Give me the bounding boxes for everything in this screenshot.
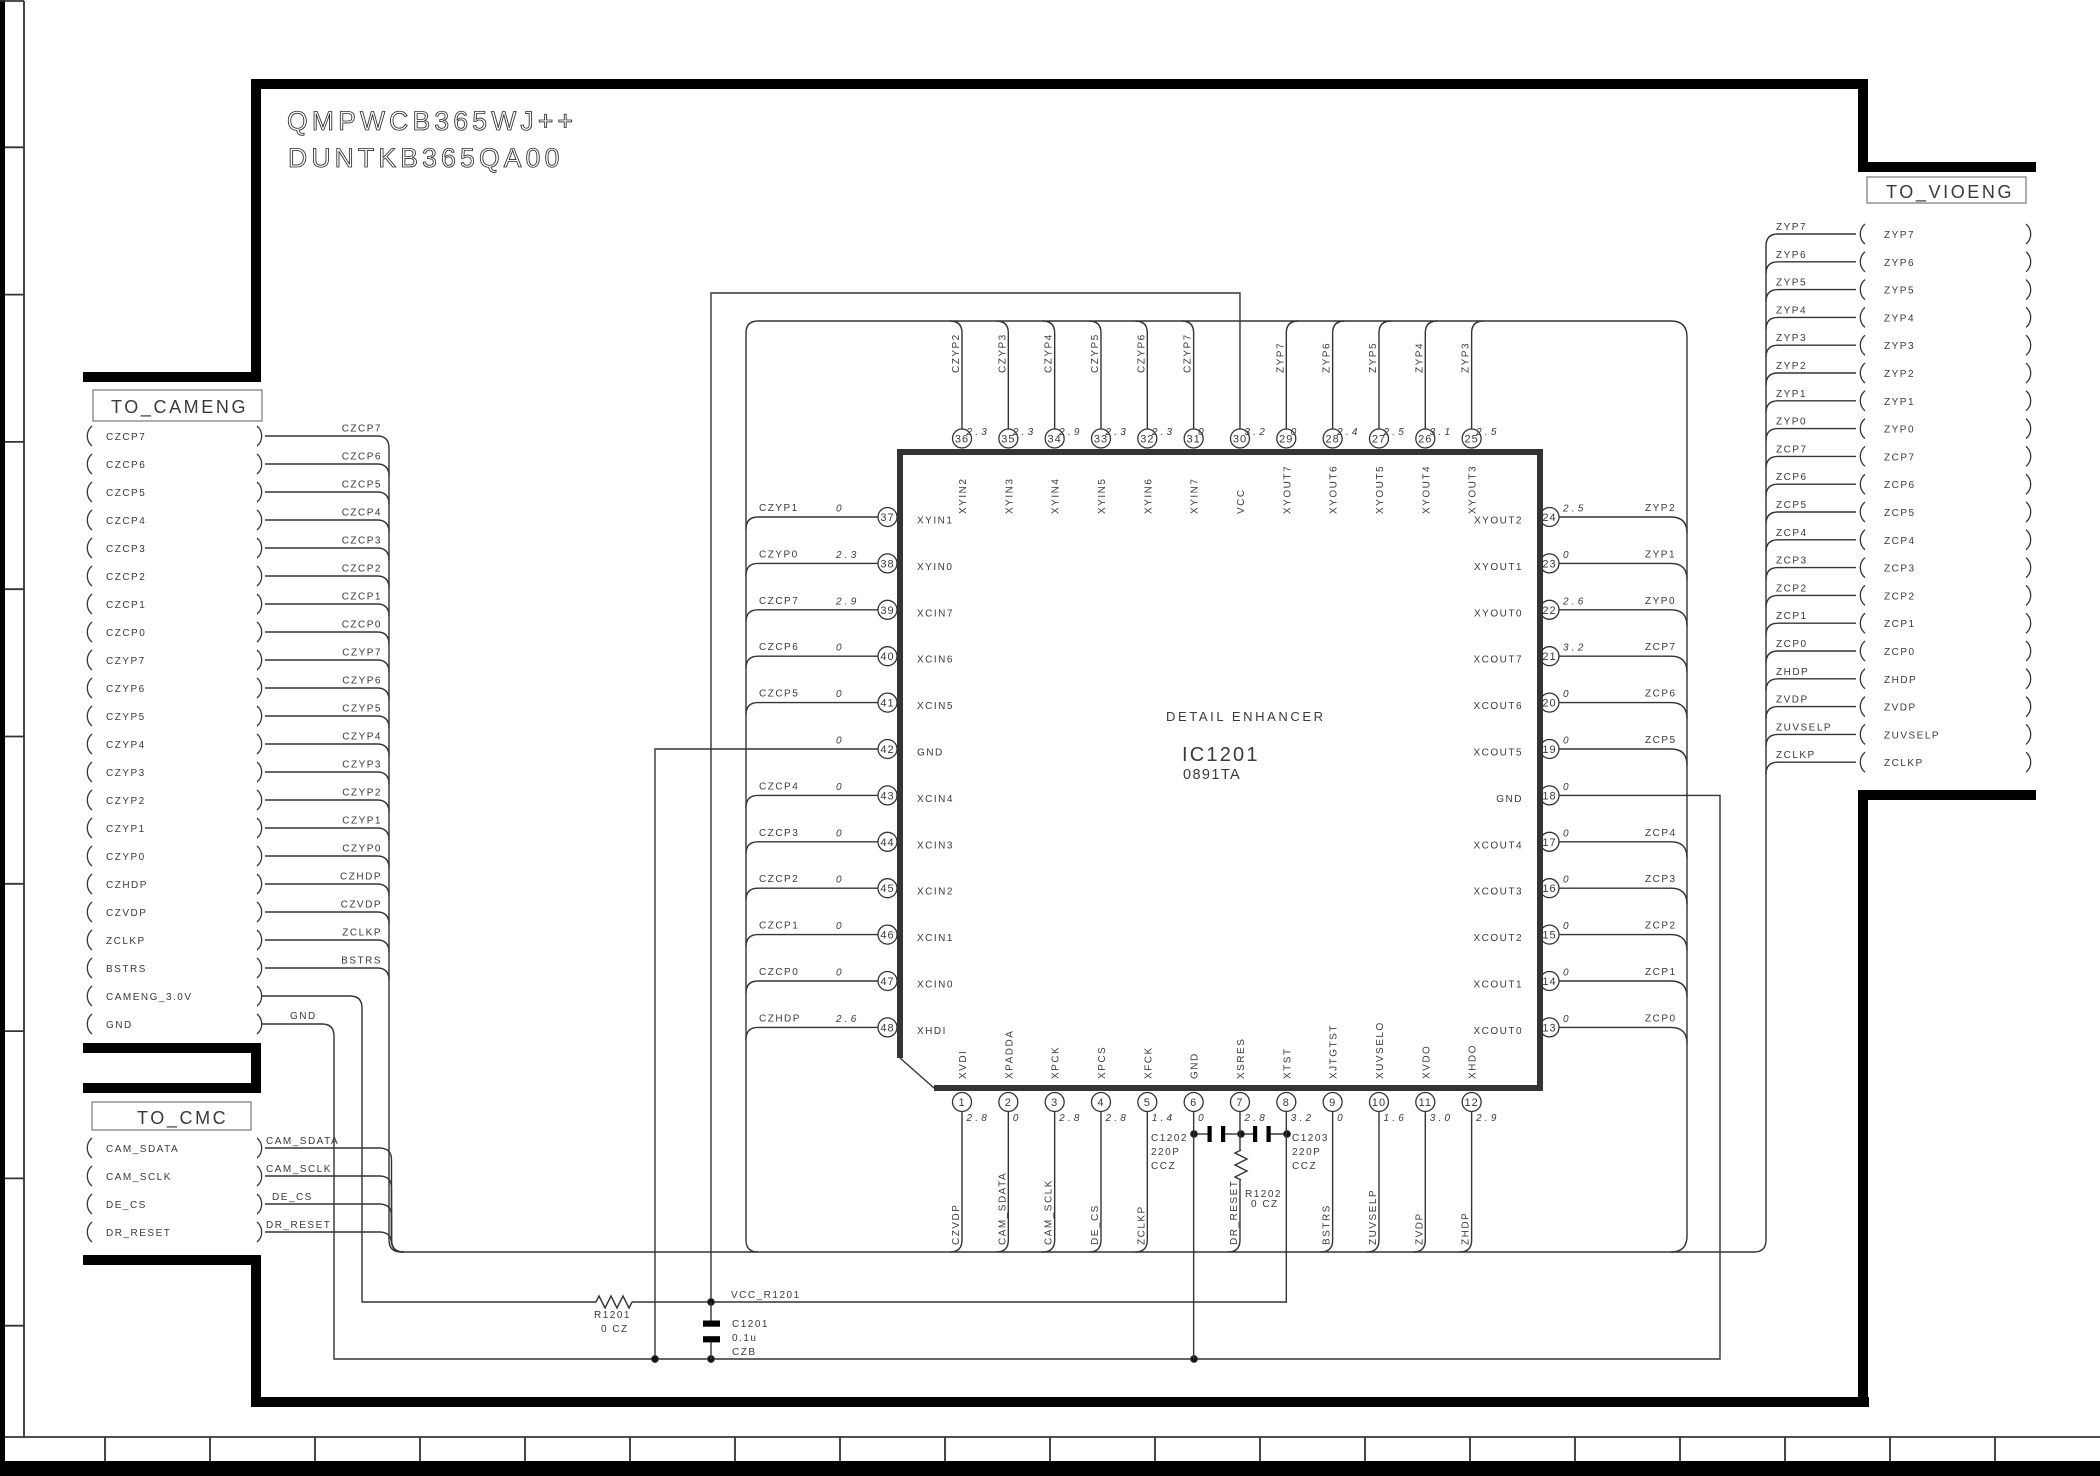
svg-text:XCOUT3: XCOUT3: [1473, 887, 1523, 898]
svg-text:2.5: 2.5: [1475, 427, 1500, 438]
svg-text:37: 37: [880, 512, 894, 524]
svg-text:0: 0: [1013, 1113, 1022, 1124]
svg-text:0: 0: [1563, 1014, 1572, 1025]
svg-text:ZCLKP: ZCLKP: [106, 936, 146, 947]
svg-text:CZCP3: CZCP3: [106, 544, 146, 555]
svg-text:DE_CS: DE_CS: [272, 1192, 313, 1203]
svg-text:2.3: 2.3: [966, 427, 991, 438]
svg-text:CZCP2: CZCP2: [759, 874, 799, 885]
svg-text:CZCP7: CZCP7: [106, 432, 146, 443]
svg-text:CZVDP: CZVDP: [106, 908, 147, 919]
svg-text:XCIN2: XCIN2: [917, 887, 954, 898]
svg-text:CZCP6: CZCP6: [342, 452, 382, 463]
svg-text:2.8: 2.8: [1104, 1113, 1129, 1124]
svg-text:XYIN3: XYIN3: [1004, 478, 1015, 514]
svg-text:VCC: VCC: [1236, 488, 1247, 514]
svg-text:CZYP6: CZYP6: [106, 684, 146, 695]
svg-text:ZYP1: ZYP1: [1776, 389, 1807, 400]
svg-text:CZYP6: CZYP6: [1136, 333, 1147, 373]
svg-text:ZYP4: ZYP4: [1776, 305, 1807, 316]
svg-text:C1202: C1202: [1151, 1133, 1188, 1144]
svg-text:BSTRS: BSTRS: [106, 964, 147, 975]
svg-text:CZCP4: CZCP4: [759, 781, 799, 792]
svg-text:0 CZ: 0 CZ: [601, 1324, 629, 1335]
svg-text:XCOUT6: XCOUT6: [1473, 701, 1523, 712]
svg-text:ZCP2: ZCP2: [1645, 921, 1677, 932]
svg-text:GND: GND: [290, 1011, 317, 1022]
svg-text:XYIN1: XYIN1: [917, 516, 953, 527]
svg-text:2.8: 2.8: [966, 1113, 991, 1124]
svg-text:TO_CMC: TO_CMC: [137, 1108, 228, 1129]
svg-text:24: 24: [1542, 512, 1556, 524]
svg-text:XYIN2: XYIN2: [958, 478, 969, 514]
svg-text:CZCP5: CZCP5: [759, 689, 799, 700]
svg-text:ZYP2: ZYP2: [1884, 369, 1915, 380]
svg-text:0 CZ: 0 CZ: [1251, 1199, 1279, 1210]
svg-text:CZCP5: CZCP5: [342, 480, 382, 491]
svg-text:ZCP4: ZCP4: [1645, 828, 1677, 839]
svg-text:40: 40: [880, 651, 894, 663]
svg-text:ZYP1: ZYP1: [1645, 549, 1676, 560]
svg-text:XCOUT5: XCOUT5: [1473, 748, 1523, 759]
svg-text:CZYP7: CZYP7: [106, 656, 146, 667]
svg-text:3.0: 3.0: [1430, 1113, 1454, 1124]
svg-text:ZUVSELP: ZUVSELP: [1884, 730, 1940, 741]
svg-text:XCOUT7: XCOUT7: [1473, 655, 1523, 666]
svg-text:XYOUT3: XYOUT3: [1468, 465, 1479, 514]
svg-text:CZCP7: CZCP7: [342, 424, 382, 435]
svg-text:0: 0: [836, 968, 845, 979]
svg-text:CZYP4: CZYP4: [342, 732, 382, 743]
svg-text:CAM_SCLK: CAM_SCLK: [106, 1172, 172, 1183]
svg-text:QMPWCB365WJ++: QMPWCB365WJ++: [287, 106, 577, 136]
svg-text:ZYP3: ZYP3: [1461, 342, 1472, 373]
svg-text:4: 4: [1097, 1097, 1104, 1109]
svg-text:ZYP6: ZYP6: [1776, 250, 1807, 261]
svg-text:CAM_SCLK: CAM_SCLK: [1044, 1179, 1055, 1245]
svg-text:0: 0: [1563, 736, 1572, 747]
svg-text:ZYP2: ZYP2: [1776, 361, 1807, 372]
svg-text:CZYP2: CZYP2: [951, 333, 962, 373]
svg-text:ZCP0: ZCP0: [1645, 1013, 1677, 1024]
svg-text:CZCP4: CZCP4: [342, 508, 382, 519]
svg-text:CZCP3: CZCP3: [759, 828, 799, 839]
svg-text:DE_CS: DE_CS: [106, 1200, 147, 1211]
svg-text:CZB: CZB: [732, 1347, 757, 1358]
svg-text:CZVDP: CZVDP: [341, 900, 382, 911]
svg-text:ZCP5: ZCP5: [1884, 508, 1916, 519]
svg-text:CZYP5: CZYP5: [106, 712, 146, 723]
svg-text:2.5: 2.5: [1382, 427, 1407, 438]
svg-text:12: 12: [1465, 1097, 1479, 1109]
svg-text:ZCP3: ZCP3: [1884, 564, 1916, 575]
svg-text:XPADDA: XPADDA: [1004, 1030, 1015, 1079]
svg-text:CZCP1: CZCP1: [759, 921, 799, 932]
svg-text:XYOUT0: XYOUT0: [1474, 608, 1523, 619]
svg-text:CCZ: CCZ: [1151, 1161, 1176, 1172]
svg-text:21: 21: [1542, 651, 1556, 663]
svg-text:ZCP7: ZCP7: [1645, 642, 1677, 653]
svg-text:XYIN0: XYIN0: [917, 562, 953, 573]
svg-text:CZYP0: CZYP0: [106, 852, 146, 863]
svg-text:CZYP5: CZYP5: [1090, 333, 1101, 373]
svg-text:VCC_R1201: VCC_R1201: [731, 1290, 801, 1301]
svg-text:16: 16: [1542, 883, 1556, 895]
svg-text:23: 23: [1542, 558, 1556, 570]
svg-text:2.3: 2.3: [1104, 427, 1129, 438]
svg-text:ZCP5: ZCP5: [1645, 735, 1677, 746]
svg-text:XYOUT1: XYOUT1: [1474, 562, 1523, 573]
svg-text:XCIN0: XCIN0: [917, 980, 954, 991]
svg-text:3: 3: [1051, 1097, 1058, 1109]
svg-text:DR_RESET: DR_RESET: [266, 1220, 331, 1231]
svg-text:C1201: C1201: [732, 1319, 769, 1330]
svg-text:ZYP5: ZYP5: [1368, 342, 1379, 373]
svg-text:ZYP2: ZYP2: [1645, 503, 1676, 514]
svg-text:39: 39: [880, 605, 894, 617]
svg-text:CZHDP: CZHDP: [340, 872, 382, 883]
svg-text:CCZ: CCZ: [1292, 1161, 1317, 1172]
svg-text:ZCP1: ZCP1: [1645, 967, 1677, 978]
svg-text:CZYP0: CZYP0: [342, 844, 382, 855]
svg-text:CZCP0: CZCP0: [106, 628, 146, 639]
svg-text:1.4: 1.4: [1152, 1113, 1176, 1124]
svg-text:GND: GND: [1190, 1052, 1201, 1079]
svg-text:CZVDP: CZVDP: [951, 1204, 962, 1245]
svg-text:ZYP7: ZYP7: [1776, 222, 1807, 233]
svg-text:41: 41: [880, 698, 894, 710]
svg-text:CZCP1: CZCP1: [342, 592, 382, 603]
svg-text:CZCP0: CZCP0: [759, 967, 799, 978]
svg-text:46: 46: [880, 930, 894, 942]
svg-text:ZCP7: ZCP7: [1776, 444, 1808, 455]
svg-text:0: 0: [1563, 968, 1572, 979]
svg-text:3.2: 3.2: [1291, 1113, 1315, 1124]
svg-text:38: 38: [880, 558, 894, 570]
svg-text:2.9: 2.9: [1058, 427, 1083, 438]
svg-text:CAMENG_3.0V: CAMENG_3.0V: [106, 992, 193, 1003]
svg-text:2.9: 2.9: [835, 596, 860, 607]
svg-text:8: 8: [1283, 1097, 1290, 1109]
svg-text:ZYP0: ZYP0: [1884, 425, 1915, 436]
svg-text:44: 44: [880, 837, 894, 849]
svg-text:XCOUT0: XCOUT0: [1473, 1026, 1523, 1037]
svg-text:0: 0: [1563, 921, 1572, 932]
svg-text:TO_VIOENG: TO_VIOENG: [1886, 182, 2014, 203]
svg-text:20: 20: [1542, 698, 1556, 710]
svg-text:XCOUT2: XCOUT2: [1473, 933, 1523, 944]
svg-text:2.5: 2.5: [1562, 504, 1587, 515]
svg-text:0: 0: [836, 689, 845, 700]
svg-text:DE_CS: DE_CS: [1090, 1204, 1101, 1245]
svg-text:ZYP3: ZYP3: [1776, 333, 1807, 344]
svg-text:XYOUT5: XYOUT5: [1375, 465, 1386, 514]
svg-text:CZYP7: CZYP7: [1183, 333, 1194, 373]
svg-text:ZCLKP: ZCLKP: [1136, 1205, 1147, 1245]
svg-text:CZYP4: CZYP4: [106, 740, 146, 751]
svg-text:XCOUT4: XCOUT4: [1473, 840, 1523, 851]
svg-text:IC1201: IC1201: [1182, 744, 1260, 766]
svg-text:ZCP2: ZCP2: [1776, 583, 1808, 594]
svg-text:BSTRS: BSTRS: [341, 956, 382, 967]
svg-text:ZUVSELP: ZUVSELP: [1776, 722, 1832, 733]
svg-text:ZYP0: ZYP0: [1645, 596, 1676, 607]
svg-text:ZYP3: ZYP3: [1884, 341, 1915, 352]
svg-text:ZCP3: ZCP3: [1645, 874, 1677, 885]
svg-text:2.8: 2.8: [1243, 1113, 1268, 1124]
svg-text:17: 17: [1542, 837, 1556, 849]
svg-text:CAM_SDATA: CAM_SDATA: [997, 1172, 1008, 1245]
svg-text:XYOUT6: XYOUT6: [1329, 465, 1340, 514]
svg-text:XHDO: XHDO: [1468, 1044, 1479, 1079]
svg-text:XCOUT1: XCOUT1: [1473, 980, 1523, 991]
svg-text:CZYP3: CZYP3: [106, 768, 146, 779]
svg-text:CZCP1: CZCP1: [106, 600, 146, 611]
svg-text:XPCK: XPCK: [1051, 1046, 1062, 1079]
svg-text:15: 15: [1542, 930, 1556, 942]
svg-text:CZCP5: CZCP5: [106, 488, 146, 499]
svg-text:ZCP4: ZCP4: [1776, 528, 1808, 539]
svg-text:2.3: 2.3: [835, 550, 860, 561]
svg-text:ZVDP: ZVDP: [1884, 703, 1917, 714]
svg-text:DETAIL ENHANCER: DETAIL ENHANCER: [1166, 709, 1326, 724]
svg-text:0: 0: [836, 504, 845, 515]
svg-text:CAM_SCLK: CAM_SCLK: [266, 1164, 332, 1175]
svg-text:CZCP7: CZCP7: [759, 596, 799, 607]
svg-text:ZCP3: ZCP3: [1776, 556, 1808, 567]
svg-text:0: 0: [1563, 689, 1572, 700]
svg-text:CZCP4: CZCP4: [106, 516, 146, 527]
svg-text:ZUVSELP: ZUVSELP: [1368, 1189, 1379, 1245]
svg-text:ZYP0: ZYP0: [1776, 417, 1807, 428]
svg-text:CZHDP: CZHDP: [106, 880, 148, 891]
svg-text:CZYP2: CZYP2: [342, 788, 382, 799]
svg-text:0: 0: [836, 828, 845, 839]
svg-text:CZHDP: CZHDP: [759, 1013, 801, 1024]
svg-text:ZCP1: ZCP1: [1884, 619, 1916, 630]
svg-text:0: 0: [836, 782, 845, 793]
svg-text:ZCP4: ZCP4: [1884, 536, 1916, 547]
svg-text:CZYP3: CZYP3: [997, 333, 1008, 373]
svg-text:CZYP1: CZYP1: [759, 503, 799, 514]
svg-text:220P: 220P: [1151, 1147, 1180, 1158]
svg-text:ZYP1: ZYP1: [1884, 397, 1915, 408]
svg-text:ZCP1: ZCP1: [1776, 611, 1808, 622]
svg-text:ZYP7: ZYP7: [1275, 342, 1286, 373]
svg-text:ZYP7: ZYP7: [1884, 230, 1915, 241]
svg-text:ZCLKP: ZCLKP: [342, 928, 382, 939]
svg-text:ZYP6: ZYP6: [1322, 342, 1333, 373]
svg-text:CZCP2: CZCP2: [342, 564, 382, 575]
svg-text:0: 0: [1337, 1113, 1346, 1124]
svg-text:XYIN5: XYIN5: [1097, 478, 1108, 514]
svg-text:0: 0: [1563, 875, 1572, 886]
svg-text:3.2: 3.2: [1244, 427, 1268, 438]
svg-text:0: 0: [1198, 427, 1207, 438]
svg-text:BSTRS: BSTRS: [1322, 1204, 1333, 1245]
svg-text:XCIN1: XCIN1: [917, 933, 954, 944]
svg-text:XYIN7: XYIN7: [1190, 478, 1201, 514]
svg-text:ZCP6: ZCP6: [1776, 472, 1808, 483]
svg-text:CAM_SDATA: CAM_SDATA: [106, 1144, 179, 1155]
svg-text:48: 48: [880, 1022, 894, 1034]
svg-text:DR_RESET: DR_RESET: [106, 1228, 171, 1239]
svg-text:2: 2: [1005, 1097, 1012, 1109]
svg-text:5: 5: [1144, 1097, 1151, 1109]
svg-text:XUVSELO: XUVSELO: [1375, 1021, 1386, 1079]
svg-text:XVDO: XVDO: [1421, 1045, 1432, 1079]
svg-text:18: 18: [1542, 790, 1556, 802]
svg-text:XPCS: XPCS: [1097, 1046, 1108, 1079]
svg-text:ZYP4: ZYP4: [1414, 342, 1425, 373]
svg-text:0: 0: [836, 921, 845, 932]
svg-text:GND: GND: [917, 748, 944, 759]
svg-text:ZYP6: ZYP6: [1884, 258, 1915, 269]
svg-text:220P: 220P: [1292, 1147, 1321, 1158]
svg-text:0: 0: [836, 875, 845, 886]
svg-text:TO_CAMENG: TO_CAMENG: [111, 397, 248, 418]
svg-text:CZYP6: CZYP6: [342, 676, 382, 687]
svg-text:2.4: 2.4: [1336, 427, 1361, 438]
svg-text:CZCP2: CZCP2: [106, 572, 146, 583]
svg-text:CAM_SDATA: CAM_SDATA: [266, 1136, 339, 1147]
svg-text:GND: GND: [1496, 794, 1523, 805]
svg-text:CZCP0: CZCP0: [342, 620, 382, 631]
svg-text:ZHDP: ZHDP: [1776, 667, 1809, 678]
svg-text:45: 45: [880, 883, 894, 895]
svg-text:0.1u: 0.1u: [732, 1333, 757, 1344]
svg-text:11: 11: [1419, 1097, 1432, 1109]
svg-text:XHDI: XHDI: [917, 1026, 947, 1037]
svg-text:CZCP6: CZCP6: [106, 460, 146, 471]
svg-text:XSRES: XSRES: [1236, 1038, 1247, 1079]
svg-text:XYOUT4: XYOUT4: [1421, 465, 1432, 514]
svg-text:ZYP4: ZYP4: [1884, 313, 1915, 324]
svg-text:ZCP6: ZCP6: [1645, 689, 1677, 700]
svg-text:XTST: XTST: [1282, 1047, 1293, 1079]
svg-text:DUNTKB365QA00: DUNTKB365QA00: [288, 143, 564, 173]
svg-text:XYIN6: XYIN6: [1143, 478, 1154, 514]
svg-text:XYIN4: XYIN4: [1051, 478, 1062, 514]
svg-text:DR_RESET: DR_RESET: [1229, 1180, 1240, 1245]
svg-text:XCIN6: XCIN6: [917, 655, 954, 666]
svg-text:CZYP7: CZYP7: [342, 648, 382, 659]
svg-text:43: 43: [880, 790, 894, 802]
svg-text:XYOUT7: XYOUT7: [1282, 465, 1293, 514]
svg-text:ZCP0: ZCP0: [1776, 639, 1808, 650]
svg-text:CZCP6: CZCP6: [759, 642, 799, 653]
svg-text:0: 0: [1563, 828, 1572, 839]
svg-text:1: 1: [958, 1097, 965, 1109]
svg-text:XCIN5: XCIN5: [917, 701, 954, 712]
svg-text:3.1: 3.1: [1430, 427, 1454, 438]
svg-text:CZYP3: CZYP3: [342, 760, 382, 771]
svg-text:CZYP4: CZYP4: [1044, 333, 1055, 373]
svg-text:R1201: R1201: [594, 1310, 631, 1321]
svg-text:XVDI: XVDI: [958, 1050, 969, 1079]
svg-text:2.3: 2.3: [1151, 427, 1176, 438]
svg-text:ZYP5: ZYP5: [1776, 278, 1807, 289]
svg-text:ZCP7: ZCP7: [1884, 452, 1916, 463]
svg-text:ZYP5: ZYP5: [1884, 286, 1915, 297]
svg-text:ZVDP: ZVDP: [1414, 1212, 1425, 1245]
svg-text:14: 14: [1542, 976, 1556, 988]
svg-text:CZYP2: CZYP2: [106, 796, 146, 807]
svg-text:CZYP1: CZYP1: [342, 816, 382, 827]
svg-text:2.6: 2.6: [835, 1014, 860, 1025]
svg-text:0: 0: [1563, 782, 1572, 793]
svg-text:ZCLKP: ZCLKP: [1776, 750, 1816, 761]
svg-text:ZCP6: ZCP6: [1884, 480, 1916, 491]
svg-text:ZVDP: ZVDP: [1776, 695, 1809, 706]
svg-text:1.6: 1.6: [1383, 1113, 1407, 1124]
svg-text:2.3: 2.3: [1012, 427, 1037, 438]
svg-text:0: 0: [1563, 550, 1572, 561]
svg-text:XJTGTST: XJTGTST: [1329, 1024, 1340, 1079]
svg-text:ZCP5: ZCP5: [1776, 500, 1808, 511]
svg-text:0: 0: [836, 643, 845, 654]
svg-text:XCIN3: XCIN3: [917, 840, 954, 851]
svg-text:XCIN7: XCIN7: [917, 608, 954, 619]
svg-text:0: 0: [1198, 1113, 1207, 1124]
svg-text:22: 22: [1542, 605, 1556, 617]
svg-text:CZCP3: CZCP3: [342, 536, 382, 547]
svg-text:13: 13: [1542, 1022, 1556, 1034]
svg-text:ZCP0: ZCP0: [1884, 647, 1916, 658]
svg-text:CZYP0: CZYP0: [759, 549, 799, 560]
svg-text:0891TA: 0891TA: [1183, 767, 1241, 783]
svg-text:ZHDP: ZHDP: [1884, 675, 1917, 686]
svg-text:2.6: 2.6: [1562, 596, 1587, 607]
svg-text:CZYP1: CZYP1: [106, 824, 146, 835]
svg-text:GND: GND: [106, 1020, 133, 1031]
svg-text:2.9: 2.9: [1475, 1113, 1500, 1124]
svg-text:XCIN4: XCIN4: [917, 794, 954, 805]
svg-text:47: 47: [880, 976, 894, 988]
svg-text:CZYP5: CZYP5: [342, 704, 382, 715]
svg-text:7: 7: [1236, 1097, 1243, 1109]
svg-text:XFCK: XFCK: [1143, 1046, 1154, 1079]
svg-text:9: 9: [1329, 1097, 1336, 1109]
svg-text:ZCP2: ZCP2: [1884, 591, 1916, 602]
svg-text:0: 0: [836, 736, 845, 747]
svg-text:0: 0: [1291, 427, 1300, 438]
svg-text:10: 10: [1372, 1097, 1386, 1109]
svg-text:XYOUT2: XYOUT2: [1474, 516, 1523, 527]
svg-text:19: 19: [1542, 744, 1556, 756]
svg-text:ZCLKP: ZCLKP: [1884, 758, 1924, 769]
svg-text:C1203: C1203: [1292, 1133, 1329, 1144]
svg-text:3.2: 3.2: [1563, 643, 1587, 654]
svg-text:2.8: 2.8: [1058, 1113, 1083, 1124]
svg-text:42: 42: [880, 744, 894, 756]
svg-text:6: 6: [1190, 1097, 1197, 1109]
svg-text:ZHDP: ZHDP: [1461, 1212, 1472, 1245]
